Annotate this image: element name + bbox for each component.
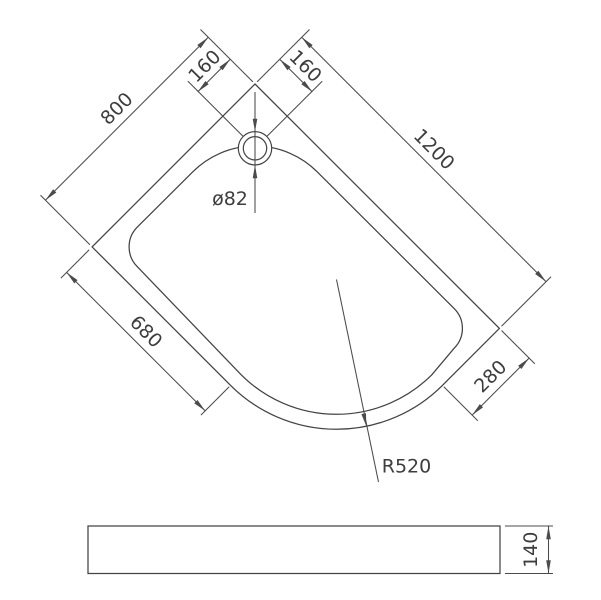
dim-1200: 1200	[302, 37, 546, 281]
side-profile-view: 140	[88, 526, 553, 574]
radius-label: R520	[382, 456, 431, 478]
dim-140-label: 140	[520, 532, 542, 568]
tray-inner-outline	[129, 146, 462, 414]
dim-160-left-label: 160	[184, 46, 225, 87]
drawing-sheet: 800 1200 160 160 680 280	[0, 0, 601, 600]
drain-diameter-label: ø82	[212, 188, 248, 210]
radius-leader-line	[337, 280, 379, 483]
ext-280-a	[502, 331, 535, 364]
dim-800-label: 800	[96, 88, 137, 129]
plan-view: 800 1200 160 160 680 280	[41, 30, 552, 483]
ext-680-a	[61, 250, 89, 278]
dim-160-right-label: 160	[285, 46, 326, 87]
dim-800: 800	[45, 37, 208, 200]
ext-1200-end	[502, 277, 552, 327]
dim-1200-label: 1200	[409, 125, 459, 175]
radius-leader: R520	[337, 280, 432, 483]
dim-800-line	[45, 37, 208, 200]
dim-280: 280	[470, 356, 529, 415]
tray-outer-outline	[92, 84, 499, 429]
dim-680: 680	[67, 272, 206, 411]
radius-leader-arrow	[361, 413, 366, 426]
dim-140: 140	[520, 526, 549, 574]
drain-dim-arrow-top	[253, 119, 258, 132]
ext-280-b	[444, 387, 478, 421]
drain-dim-arrow-bottom	[253, 165, 258, 178]
extension-lines	[41, 30, 552, 421]
ext-drain-left	[188, 81, 243, 136]
ext-800-end	[41, 195, 90, 245]
dim-680-label: 680	[125, 311, 166, 352]
dim-1200-line	[302, 37, 546, 281]
profile-rect	[88, 526, 500, 574]
ext-drain-right	[267, 81, 322, 136]
dim-280-label: 280	[470, 356, 511, 397]
shower-tray-technical-drawing: 800 1200 160 160 680 280	[0, 0, 601, 600]
dim-680-line	[67, 272, 206, 411]
